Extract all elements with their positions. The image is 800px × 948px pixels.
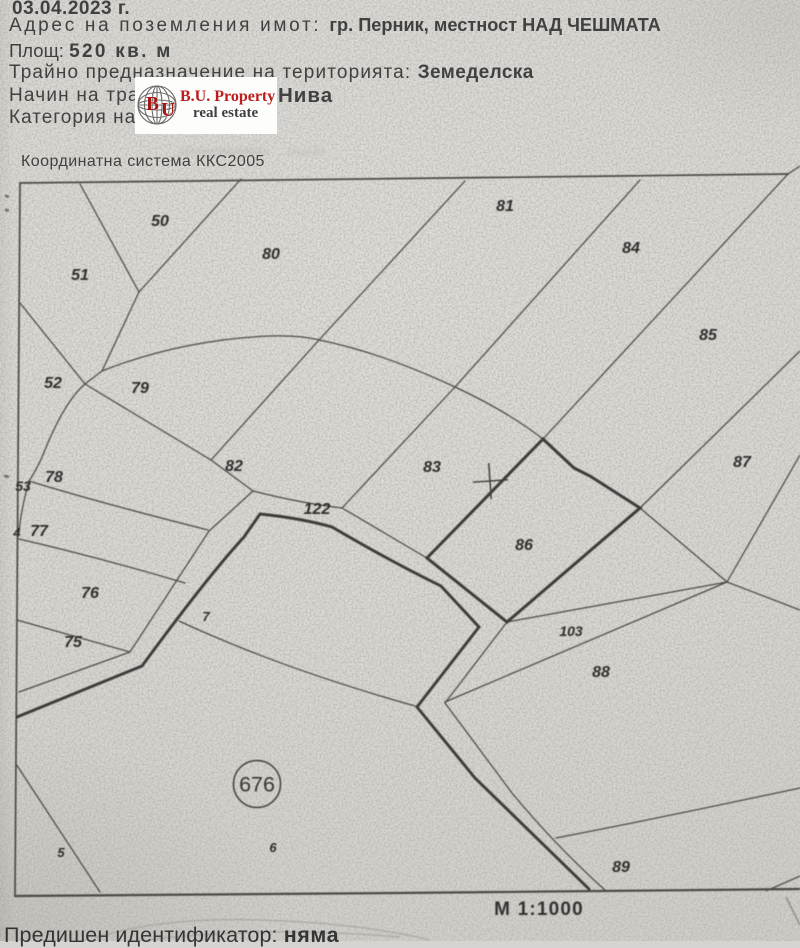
svg-text:82: 82	[225, 458, 243, 475]
svg-text:7: 7	[202, 609, 210, 624]
svg-text:89: 89	[612, 859, 630, 876]
svg-text:75: 75	[64, 634, 83, 651]
svg-text:103: 103	[559, 623, 583, 639]
svg-text:6: 6	[269, 840, 277, 855]
svg-text:88: 88	[592, 664, 610, 681]
svg-text:53: 53	[15, 478, 31, 494]
svg-text:52: 52	[44, 375, 62, 392]
svg-text:87: 87	[733, 454, 752, 471]
svg-text:84: 84	[622, 240, 640, 257]
svg-text:76: 76	[81, 585, 99, 602]
svg-text:85: 85	[699, 327, 718, 344]
svg-text:51: 51	[71, 267, 89, 284]
svg-text:78: 78	[45, 469, 63, 486]
svg-text:676: 676	[239, 773, 275, 797]
svg-text:4: 4	[12, 525, 21, 540]
svg-text:80: 80	[262, 246, 280, 263]
svg-text:М 1:1000: М 1:1000	[494, 899, 584, 920]
svg-text:83: 83	[423, 459, 441, 476]
svg-text:5: 5	[57, 845, 65, 860]
svg-text:81: 81	[496, 198, 514, 215]
svg-text:86: 86	[515, 537, 533, 554]
svg-text:79: 79	[131, 380, 149, 397]
svg-text:77: 77	[30, 523, 49, 540]
svg-text:50: 50	[151, 213, 169, 230]
svg-text:122: 122	[304, 501, 331, 518]
